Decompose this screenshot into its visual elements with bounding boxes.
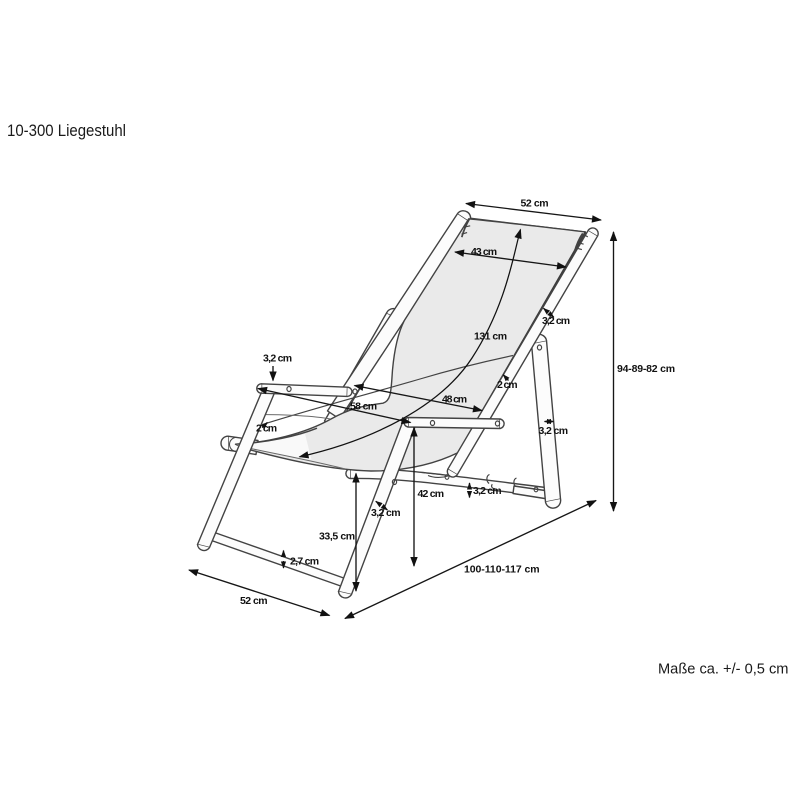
svg-text:100-110-117 cm: 100-110-117 cm (464, 564, 540, 576)
svg-text:2 cm: 2 cm (497, 379, 518, 391)
svg-text:10-300 Liegestuhl: 10-300 Liegestuhl (7, 121, 126, 140)
svg-text:3,2 cm: 3,2 cm (542, 315, 570, 327)
svg-text:2,7 cm: 2,7 cm (290, 556, 319, 568)
svg-text:3,2 cm: 3,2 cm (371, 507, 401, 519)
svg-text:48 cm: 48 cm (442, 394, 467, 406)
svg-text:58 cm: 58 cm (350, 401, 377, 413)
svg-text:43 cm: 43 cm (471, 246, 497, 258)
svg-text:131 cm: 131 cm (474, 331, 507, 343)
svg-text:3,2 cm: 3,2 cm (473, 485, 502, 497)
svg-text:2 cm: 2 cm (256, 423, 277, 435)
svg-text:94-89-82 cm: 94-89-82 cm (617, 363, 675, 375)
svg-text:42 cm: 42 cm (418, 488, 445, 500)
svg-text:33,5 cm: 33,5 cm (319, 531, 355, 543)
svg-text:Maße ca. +/- 0,5 cm: Maße ca. +/- 0,5 cm (658, 661, 789, 678)
svg-text:52 cm: 52 cm (521, 198, 549, 210)
svg-text:3,2 cm: 3,2 cm (539, 425, 569, 437)
svg-text:3,2 cm: 3,2 cm (263, 353, 292, 365)
svg-text:52 cm: 52 cm (240, 595, 268, 607)
